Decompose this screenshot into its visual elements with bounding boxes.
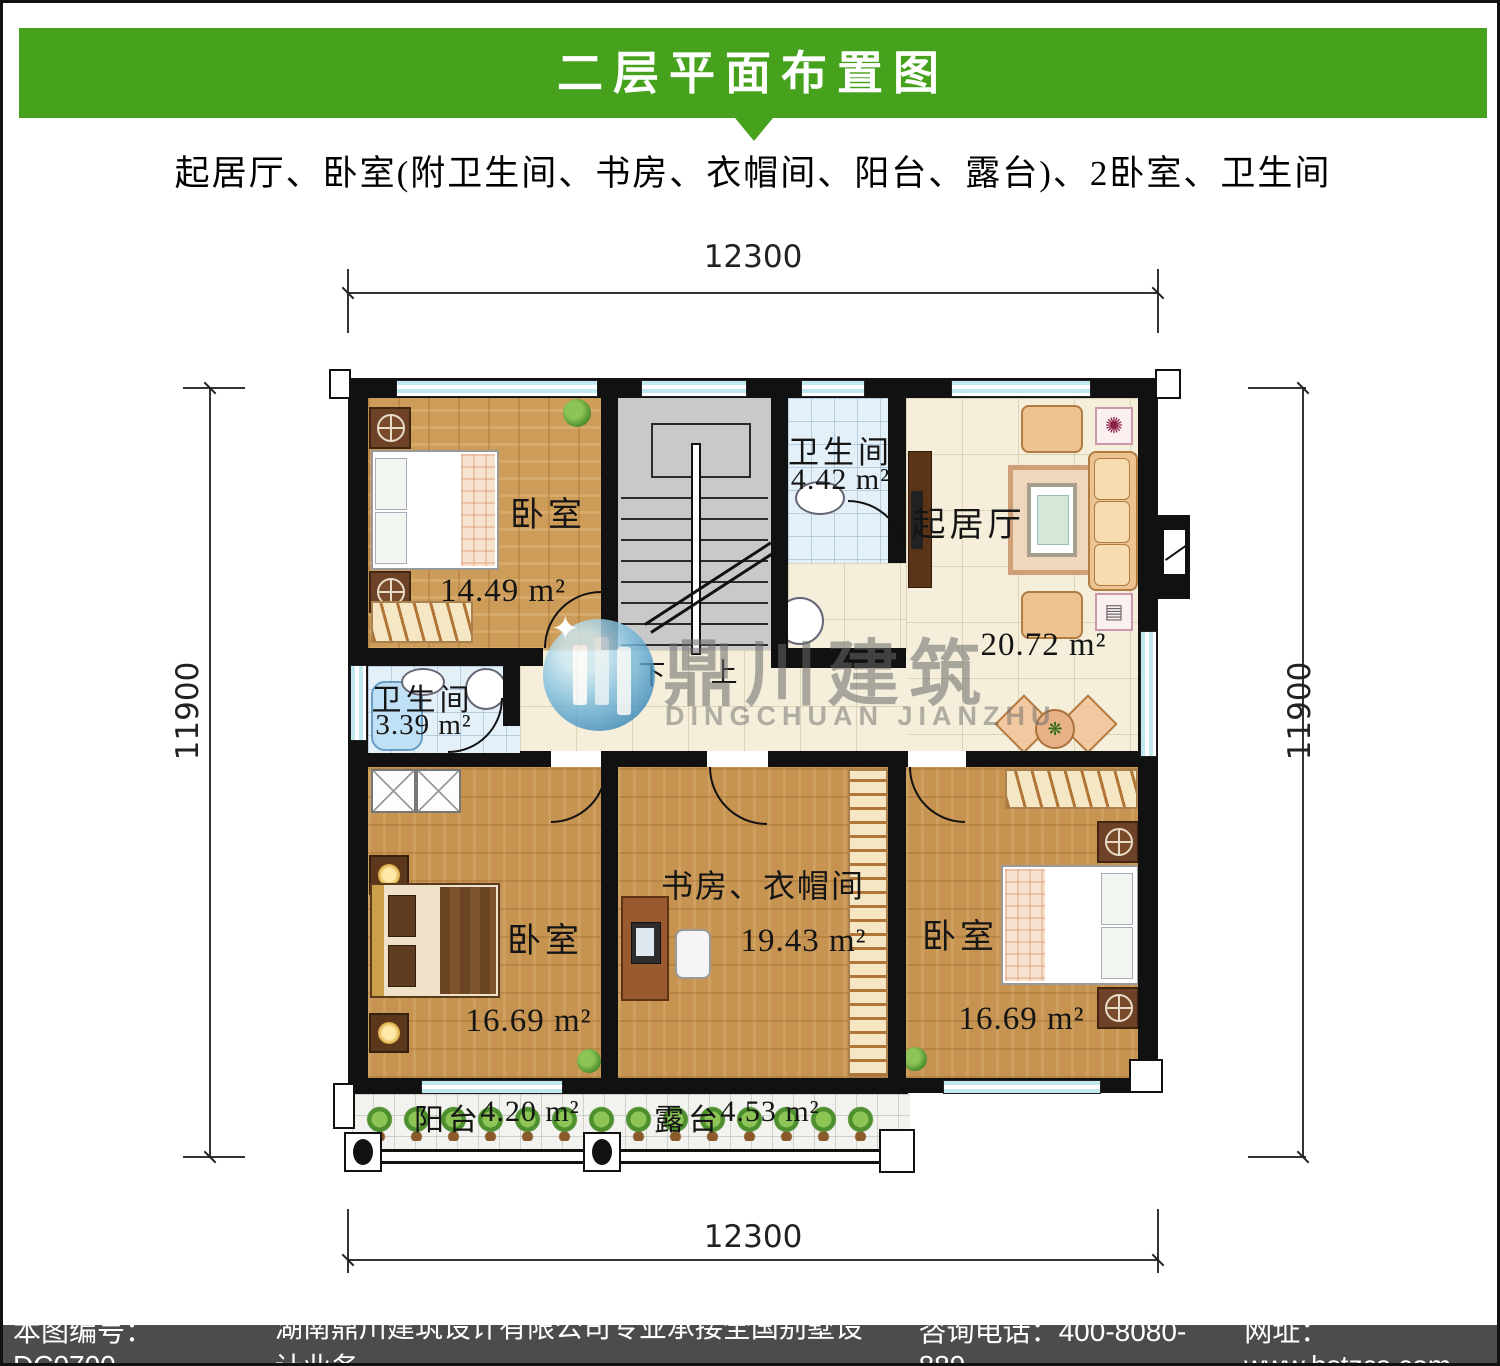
room-label: 书房、衣帽间 [643, 861, 883, 907]
column [879, 1129, 915, 1173]
room-label: 起居厅 [901, 497, 1036, 546]
corner-marker [329, 369, 351, 399]
pillow [388, 895, 416, 937]
plant-icon [903, 1047, 927, 1071]
wall [520, 751, 551, 767]
room-area: 16.69 m² [939, 1001, 1104, 1038]
plant-icon [577, 1049, 601, 1073]
page-title: 二层平面布置图 [19, 28, 1487, 118]
dim-right-label: 11900 [1282, 626, 1318, 796]
sofa [1088, 451, 1138, 591]
dim-ext [1157, 269, 1159, 333]
footer-website: 网址：www.bstzcs.com [1244, 1310, 1500, 1366]
screen [636, 928, 654, 956]
stair-landing [651, 423, 751, 478]
corner-marker [1129, 1059, 1163, 1093]
room-label: 卧室 [895, 909, 1025, 958]
room-area: 4.53 m² [705, 1095, 835, 1129]
dim-ext [1157, 1209, 1159, 1273]
computer-monitor [631, 922, 661, 964]
wall [348, 753, 520, 767]
sparkle-icon: ✦ [551, 609, 580, 649]
window [943, 1080, 1101, 1094]
corner-marker [333, 1083, 355, 1129]
room-label: 卧室 [483, 487, 613, 536]
wall-lamp [369, 1013, 409, 1053]
bed [371, 450, 499, 570]
pillow [1101, 873, 1133, 925]
pillow [375, 458, 407, 510]
side-table: ✺ [1095, 407, 1133, 445]
window [396, 380, 598, 397]
dim-ext [183, 1156, 245, 1158]
closet [416, 769, 461, 813]
dim-left-line [209, 388, 211, 1158]
wall [966, 751, 1138, 767]
room-area: 19.43 m² [721, 923, 886, 960]
sofa-cushion [1094, 501, 1130, 543]
column [583, 1132, 621, 1172]
room-area: 16.69 m² [446, 1003, 611, 1040]
armchair [1021, 405, 1083, 453]
room-area: 4.42 m² [778, 463, 903, 497]
chair [675, 929, 711, 979]
page-subtitle: 起居厅、卧室(附卫生间、书房、衣帽间、阳台、露台)、2卧室、卫生间 [3, 145, 1500, 196]
window [421, 1080, 563, 1094]
wall [768, 751, 908, 767]
column [344, 1132, 382, 1172]
room-label: 卧室 [480, 913, 610, 962]
dim-ext [183, 387, 245, 389]
pillow [375, 512, 407, 564]
side-table: ▤ [1095, 593, 1133, 631]
dim-ext [347, 269, 349, 333]
wall [368, 648, 543, 666]
dim-bottom-line [348, 1259, 1158, 1261]
footer-company: 湖南鼎川建筑设计有限公司专业承接全国别墅设计业务 [275, 1306, 873, 1366]
footer-bar: 本图编号：DC0700 湖南鼎川建筑设计有限公司专业承接全国别墅设计业务 咨询电… [3, 1325, 1500, 1366]
title-banner: 二层平面布置图 [19, 28, 1487, 118]
sofa-cushion [1094, 544, 1130, 586]
dim-left-label: 11900 [170, 626, 206, 796]
wall [607, 751, 707, 767]
room-area: 3.39 m² [361, 709, 486, 742]
pillow [1101, 927, 1133, 979]
watermark-en: DINGCHUAN JIANZHU [665, 701, 1057, 732]
corner-marker [1155, 369, 1181, 399]
wardrobe [1005, 769, 1138, 809]
wall [503, 666, 520, 726]
nightstand [369, 407, 411, 449]
nightstand [1097, 821, 1139, 863]
window [1140, 631, 1157, 757]
closet [371, 769, 416, 813]
footer-drawing-code: 本图编号：DC0700 [13, 1310, 229, 1366]
banner-pointer [735, 118, 773, 141]
plant-icon [563, 399, 591, 427]
headboard [372, 885, 384, 996]
room-area: 14.49 m² [423, 573, 583, 610]
dim-ext [1248, 1156, 1306, 1158]
desk [621, 896, 669, 1001]
floor-plan-page: 二层平面布置图 起居厅、卧室(附卫生间、书房、衣帽间、阳台、露台)、2卧室、卫生… [0, 0, 1500, 1366]
window [951, 380, 1091, 397]
dim-top-label: 12300 [348, 239, 1158, 275]
dim-bottom-label: 12300 [348, 1219, 1158, 1255]
room-area: 4.20 m² [465, 1095, 595, 1129]
footer-phone: 咨询电话：400-8080-889 [919, 1310, 1199, 1366]
balcony-rail [348, 1161, 914, 1164]
sofa-cushion [1094, 458, 1130, 500]
dim-top-line [348, 292, 1158, 294]
window [641, 380, 747, 397]
window [801, 380, 865, 397]
table-top [1037, 495, 1069, 545]
balcony-rail [348, 1149, 914, 1152]
dim-ext [347, 1209, 349, 1273]
dim-ext [1248, 387, 1306, 389]
pillow [388, 945, 416, 987]
